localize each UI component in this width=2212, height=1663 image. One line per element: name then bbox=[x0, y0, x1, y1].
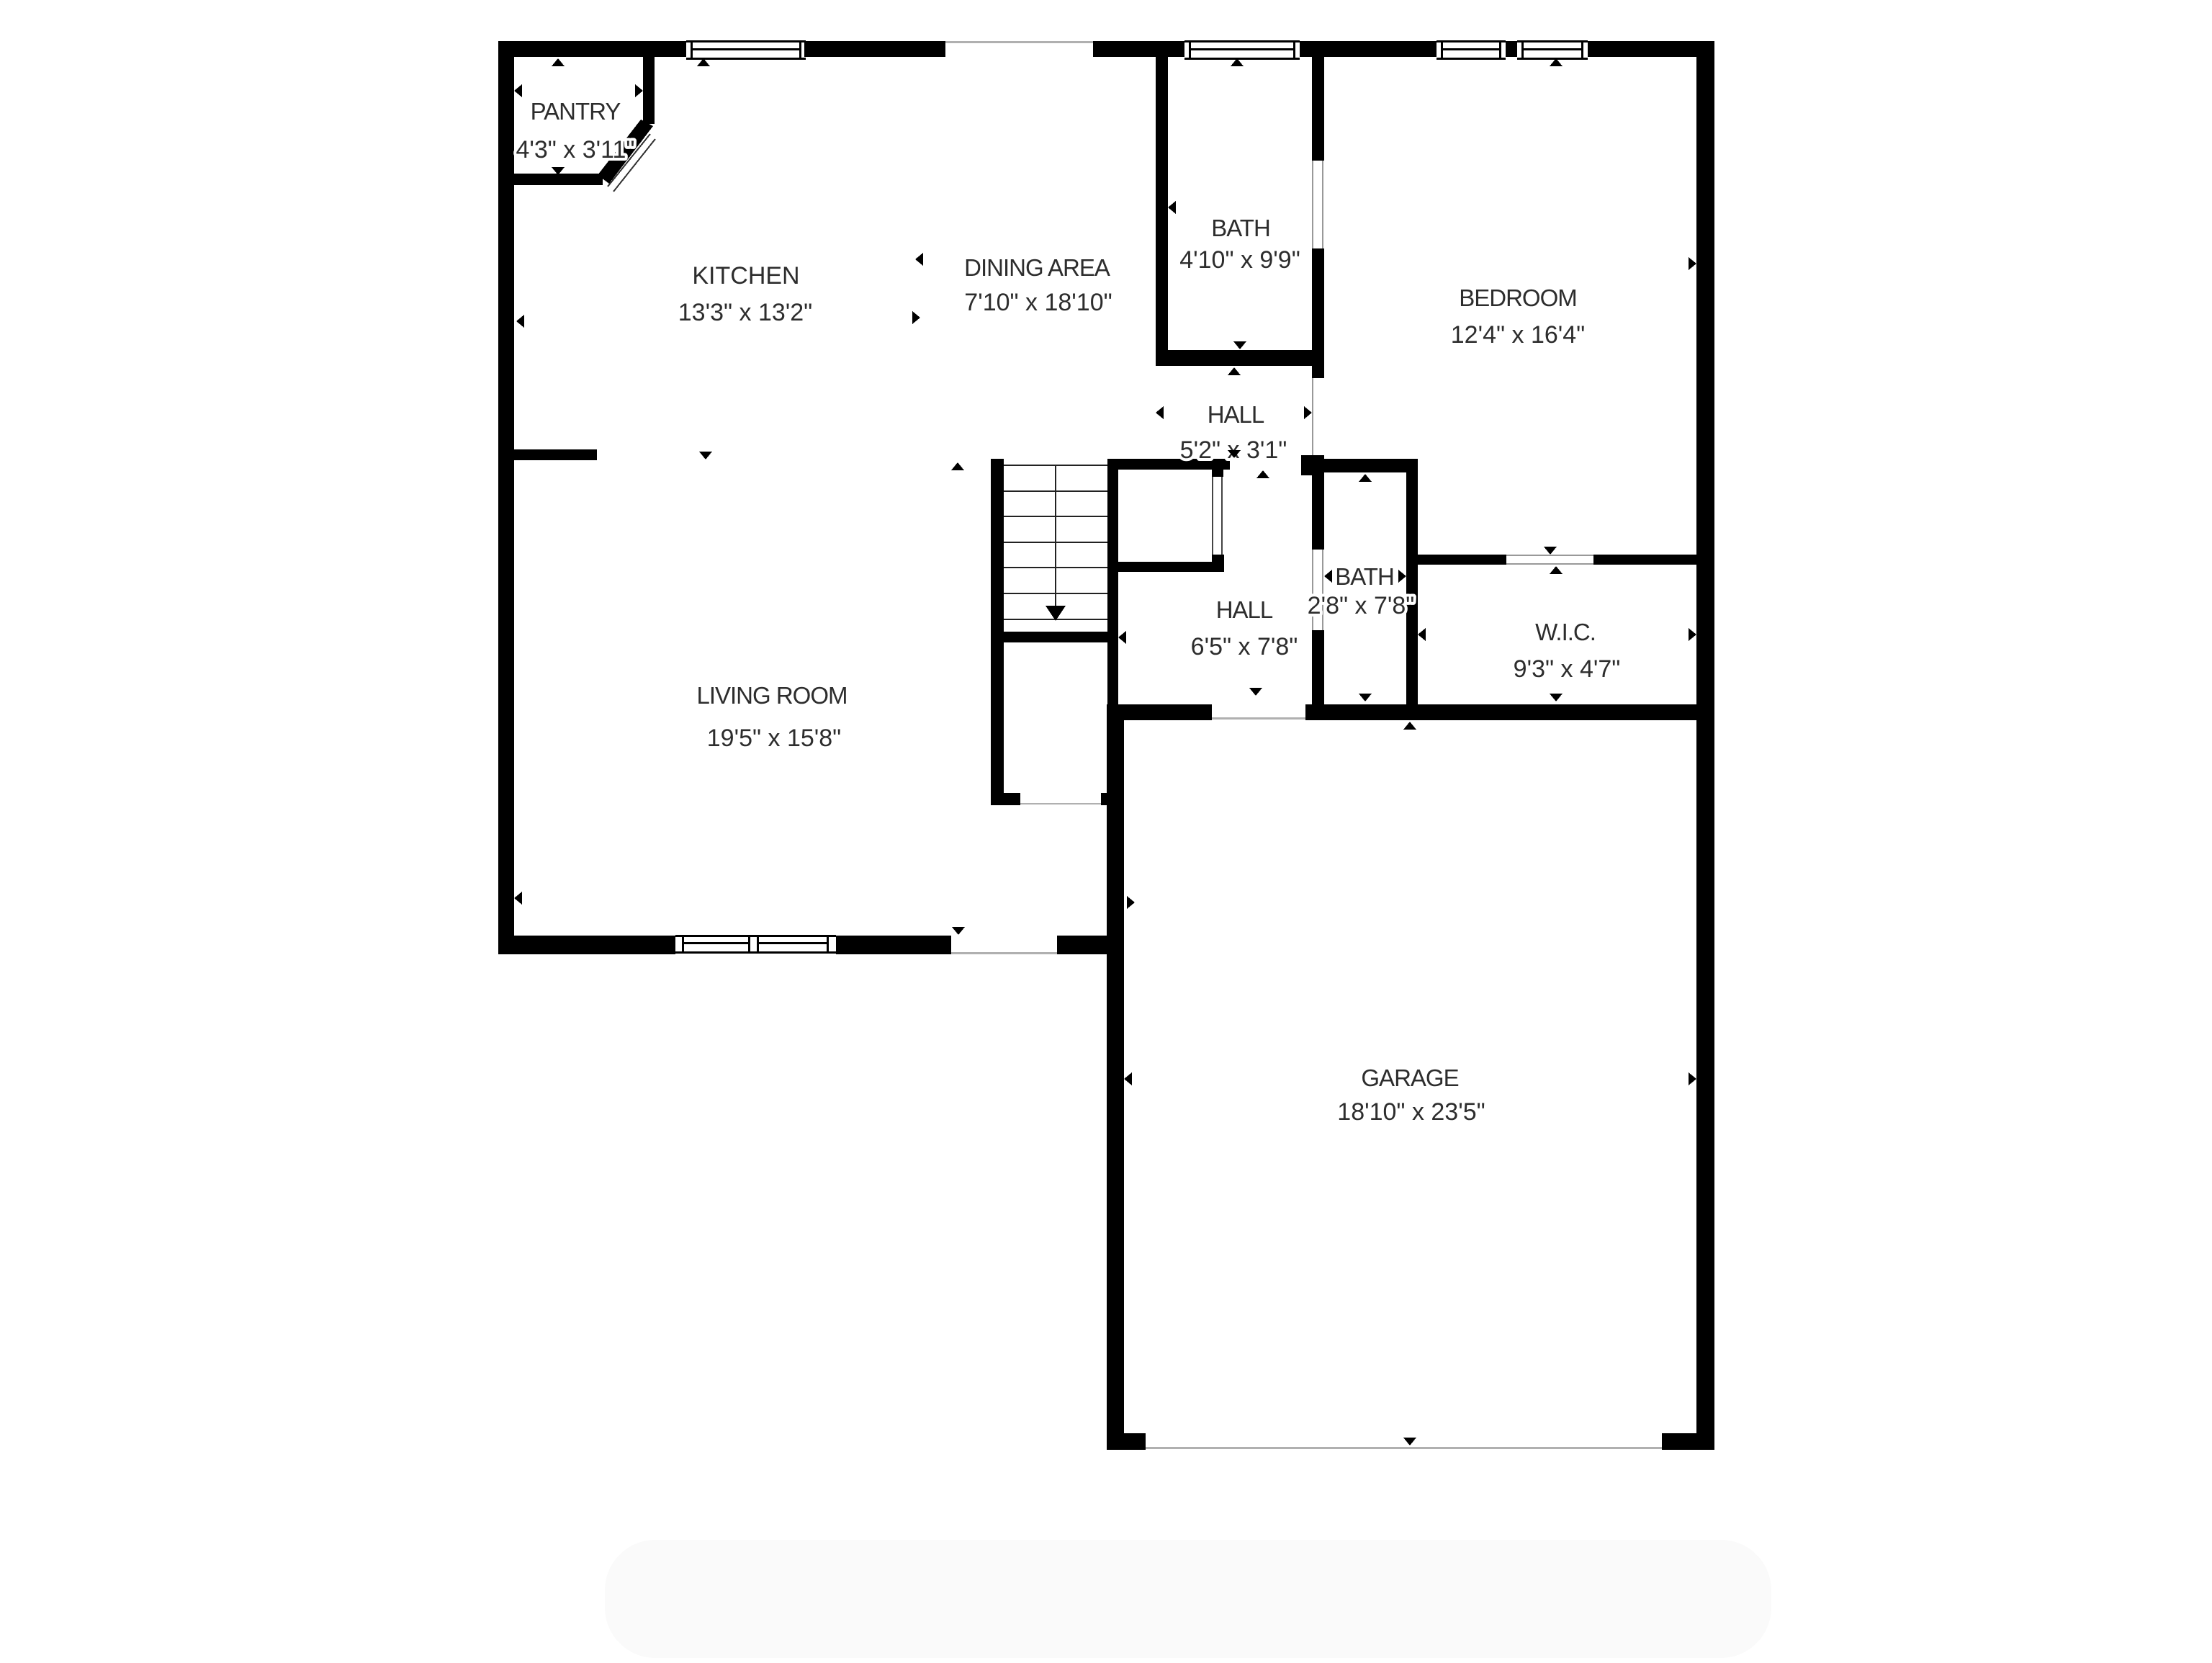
svg-text:19'5" x 15'8": 19'5" x 15'8" bbox=[707, 725, 841, 752]
svg-text:BATH: BATH bbox=[1335, 563, 1394, 590]
svg-text:PANTRY: PANTRY bbox=[531, 98, 621, 125]
svg-text:2'8" x 7'8": 2'8" x 7'8" bbox=[1308, 592, 1415, 619]
svg-text:18'10" x 23'5": 18'10" x 23'5" bbox=[1337, 1098, 1485, 1126]
svg-text:7'10" x 18'10": 7'10" x 18'10" bbox=[964, 289, 1112, 316]
svg-text:BEDROOM: BEDROOM bbox=[1459, 284, 1577, 311]
svg-text:HALL: HALL bbox=[1216, 596, 1273, 623]
svg-text:4'3" x 3'11": 4'3" x 3'11" bbox=[516, 136, 634, 163]
svg-text:13'3" x 13'2": 13'3" x 13'2" bbox=[678, 299, 812, 326]
svg-text:W.I.C.: W.I.C. bbox=[1535, 619, 1596, 645]
svg-text:BATH: BATH bbox=[1211, 215, 1270, 241]
svg-text:KITCHEN: KITCHEN bbox=[692, 262, 799, 290]
svg-text:6'5" x 7'8": 6'5" x 7'8" bbox=[1191, 633, 1298, 660]
svg-text:4'10" x 9'9": 4'10" x 9'9" bbox=[1179, 246, 1300, 274]
svg-text:HALL: HALL bbox=[1208, 401, 1264, 428]
svg-text:LIVING ROOM: LIVING ROOM bbox=[696, 682, 847, 709]
svg-text:9'3" x 4'7": 9'3" x 4'7" bbox=[1514, 655, 1621, 683]
svg-text:12'4" x 16'4": 12'4" x 16'4" bbox=[1451, 321, 1585, 349]
svg-text:DINING AREA: DINING AREA bbox=[964, 254, 1110, 281]
svg-text:GARAGE: GARAGE bbox=[1361, 1064, 1458, 1091]
